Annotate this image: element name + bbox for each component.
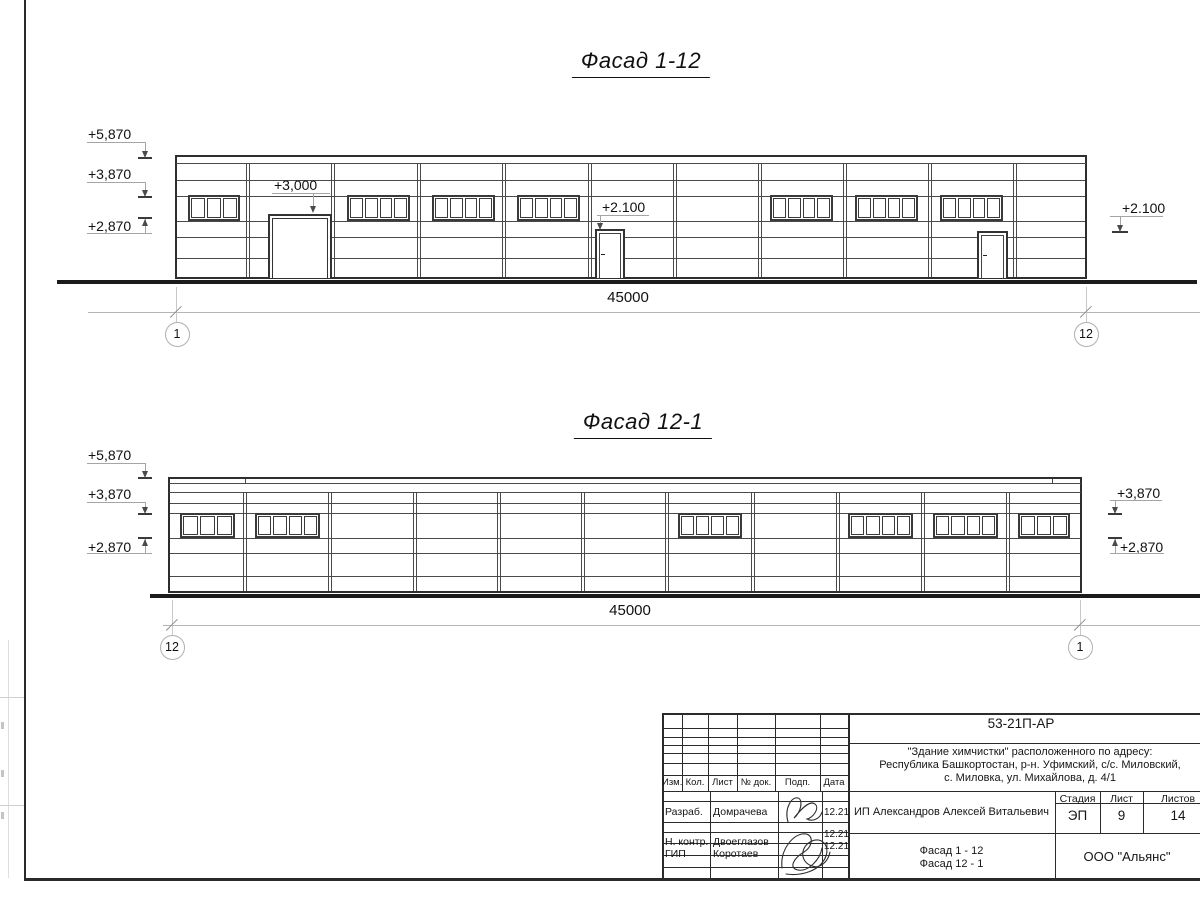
project-address-line: с. Миловка, ул. Михайлова, д. 4/1	[848, 772, 1200, 785]
sheet-label: Лист	[1100, 793, 1143, 805]
window-pane	[479, 198, 492, 218]
door-leaf	[599, 233, 621, 278]
column-line	[588, 163, 592, 277]
project-address-line: "Здание химчистки" расположенного по адр…	[848, 746, 1200, 759]
column-line	[581, 492, 585, 591]
elevation-level-tick	[138, 513, 152, 515]
sheets-total-label: Листов	[1143, 793, 1200, 805]
window-pane	[350, 198, 363, 218]
elevation-underline	[1110, 216, 1163, 217]
elevation-mark-text: +3,870	[1117, 485, 1160, 501]
role-razrab: Разраб.	[665, 806, 703, 818]
door-handle	[983, 255, 987, 257]
elevation-mark-text: +2,870	[88, 218, 131, 234]
dimension-value: 45000	[607, 289, 649, 306]
title-block-line	[662, 713, 1200, 715]
window-pane	[696, 516, 709, 535]
axis-circle: 1	[165, 322, 190, 347]
elevation-underline	[87, 553, 152, 554]
dimension-line	[88, 312, 1200, 313]
column-line	[497, 492, 501, 591]
stage-label: Стадия	[1055, 793, 1100, 805]
column-line	[246, 163, 250, 277]
name-nkontr: Двоеглазов	[713, 836, 769, 848]
project-address-line: Республика Башкортостан, р-н. Уфимский, …	[848, 759, 1200, 772]
margin-text-stub	[1, 722, 4, 729]
col-header-ndok: № док.	[737, 778, 775, 789]
window	[517, 195, 580, 221]
elevation-underline	[87, 233, 152, 234]
column-line	[665, 492, 669, 591]
sheet-margin-divider	[0, 805, 24, 806]
window-pane	[200, 516, 215, 535]
window-pane	[564, 198, 577, 218]
window-pane	[967, 516, 980, 535]
title-block-line	[848, 743, 1200, 744]
drawing-sheet: Фасад 1-12 Фасад 12-1 +5,870+3,870+2,870…	[0, 0, 1200, 900]
title-block-line	[662, 713, 664, 879]
role-gip: ГИП	[665, 848, 686, 860]
siding-line	[170, 576, 1080, 577]
elevation-shaft	[313, 193, 314, 207]
column-line	[328, 492, 332, 591]
window-pane	[951, 516, 964, 535]
elevation-level-tick	[1112, 231, 1128, 233]
col-header-izm: Изм.	[662, 778, 682, 789]
elevation-arrow-icon	[597, 223, 603, 230]
elevation-arrow-icon	[310, 206, 316, 213]
window-pane	[773, 198, 786, 218]
ground-line	[57, 280, 1197, 284]
window-pane	[1053, 516, 1067, 535]
elevation-mark-text: +5,870	[88, 126, 131, 142]
title-block-line	[662, 791, 1200, 792]
parapet-band-line	[176, 163, 1086, 164]
col-header-kol: Кол.	[682, 778, 708, 789]
window-pane	[273, 516, 286, 535]
window-pane	[289, 516, 302, 535]
window-pane	[520, 198, 533, 218]
company-name: ООО "Альянс"	[1057, 850, 1197, 865]
siding-line	[170, 538, 1080, 539]
window-pane	[1021, 516, 1035, 535]
dimension-value: 45000	[609, 602, 651, 619]
window-pane	[435, 198, 448, 218]
window-pane	[681, 516, 694, 535]
parapet-joint-line	[1052, 479, 1053, 483]
window-pane	[803, 198, 816, 218]
window	[855, 195, 918, 221]
column-line	[1013, 163, 1017, 277]
column-line	[1006, 492, 1010, 591]
parapet-band-line	[169, 492, 1081, 493]
window-pane	[394, 198, 407, 218]
window-pane	[304, 516, 317, 535]
elevation-underline	[597, 215, 649, 216]
parapet-joint-line	[245, 479, 246, 483]
window	[770, 195, 833, 221]
col-header-data: Дата	[820, 778, 848, 789]
window	[678, 513, 742, 538]
window	[432, 195, 495, 221]
margin-text-stub	[1, 812, 4, 819]
column-line	[417, 163, 421, 277]
client-name: ИП Александров Алексей Витальевич	[850, 806, 1053, 819]
door-handle	[601, 254, 605, 256]
window-pane	[973, 198, 986, 218]
elevation-underline	[1110, 500, 1162, 501]
window-pane	[217, 516, 232, 535]
sheet-frame-left	[24, 0, 26, 880]
window	[188, 195, 240, 221]
column-line	[843, 163, 847, 277]
name-razrab: Домрачева	[713, 806, 767, 818]
col-header-list: Лист	[708, 778, 737, 789]
document-number: 53-21П-АР	[848, 716, 1194, 732]
window	[940, 195, 1003, 221]
axis-circle: 12	[1074, 322, 1099, 347]
axis-circle: 12	[160, 635, 185, 660]
column-line	[751, 492, 755, 591]
door	[977, 231, 1008, 278]
elevation-underline	[272, 193, 330, 194]
extension-line	[176, 287, 177, 325]
column-line	[758, 163, 762, 277]
name-gip: Коротаев	[713, 848, 758, 860]
dimension-line	[163, 625, 1200, 626]
elevation-mark-text: +3,870	[88, 486, 131, 502]
window	[347, 195, 410, 221]
title-block-line	[710, 791, 711, 879]
window-pane	[191, 198, 205, 218]
window-pane	[450, 198, 463, 218]
col-header-podp: Подп.	[775, 778, 820, 789]
drawing-title-line: Фасад 1 - 12	[848, 845, 1055, 858]
siding-line	[170, 553, 1080, 554]
elevation-underline	[87, 182, 145, 183]
door	[595, 229, 625, 278]
column-line	[928, 163, 932, 277]
window	[848, 513, 913, 538]
window-pane	[982, 516, 995, 535]
window-pane	[183, 516, 198, 535]
sheets-total-value: 14	[1143, 808, 1200, 824]
window	[933, 513, 998, 538]
window-pane	[1037, 516, 1051, 535]
elevation-underline	[87, 142, 145, 143]
extension-line	[172, 600, 173, 637]
elevation-level-tick	[138, 537, 152, 539]
sheet-frame-bottom	[24, 878, 1200, 881]
window-pane	[888, 198, 901, 218]
ground-line	[150, 594, 1200, 598]
window-pane	[535, 198, 548, 218]
elevation-level-tick	[1108, 513, 1122, 515]
window-pane	[882, 516, 895, 535]
elevation-arrow-icon	[142, 539, 148, 546]
elevation-mark-text: +5,870	[88, 447, 131, 463]
window-pane	[726, 516, 739, 535]
column-line	[836, 492, 840, 591]
window-pane	[936, 516, 949, 535]
sheet-number: 9	[1100, 808, 1143, 824]
window-pane	[902, 198, 915, 218]
axis-circle: 1	[1068, 635, 1093, 660]
window-pane	[987, 198, 1000, 218]
elevation-mark-text: +2.100	[602, 199, 645, 215]
window-pane	[873, 198, 886, 218]
window-pane	[465, 198, 478, 218]
gate	[268, 214, 332, 278]
elevation-level-tick	[138, 477, 152, 479]
elevation-arrow-icon	[142, 219, 148, 226]
window	[255, 513, 320, 538]
elevation-level-tick	[138, 157, 152, 159]
sheet-margin-line	[8, 640, 9, 878]
elevation-underline	[87, 502, 145, 503]
window-pane	[711, 516, 724, 535]
role-nkontr: Н. контр.	[665, 836, 708, 848]
window-pane	[258, 516, 271, 535]
column-line	[502, 163, 506, 277]
elevation-mark-text: +3,870	[88, 166, 131, 182]
window-pane	[380, 198, 393, 218]
window-pane	[958, 198, 971, 218]
elevation-mark-text: +2.100	[1122, 200, 1165, 216]
window-pane	[550, 198, 563, 218]
elevation-underline	[1110, 553, 1164, 554]
window-pane	[897, 516, 910, 535]
window-pane	[866, 516, 879, 535]
elevation-level-tick	[138, 217, 152, 219]
elevation-mark-text: +3,000	[274, 177, 317, 193]
window-pane	[788, 198, 801, 218]
stage-value: ЭП	[1055, 808, 1100, 824]
window-pane	[943, 198, 956, 218]
drawing-title-line: Фасад 12 - 1	[848, 858, 1055, 871]
elevation-level-tick	[1108, 537, 1122, 539]
window	[180, 513, 235, 538]
door-leaf	[981, 235, 1004, 278]
parapet-band-line	[169, 483, 1081, 484]
column-line	[243, 492, 247, 591]
window-pane	[817, 198, 830, 218]
extension-line	[1080, 600, 1081, 637]
signatures	[776, 792, 836, 878]
elevation-underline	[87, 463, 145, 464]
window-pane	[207, 198, 221, 218]
window-pane	[858, 198, 871, 218]
window-pane	[223, 198, 237, 218]
gate-inner-frame	[272, 218, 328, 278]
column-line	[673, 163, 677, 277]
extension-line	[1086, 287, 1087, 325]
margin-text-stub	[1, 770, 4, 777]
sheet-margin-divider	[0, 697, 24, 698]
window-pane	[365, 198, 378, 218]
elevation-arrow-icon	[1112, 539, 1118, 546]
column-line	[921, 492, 925, 591]
window-pane	[851, 516, 864, 535]
column-line	[413, 492, 417, 591]
elevation-level-tick	[138, 196, 152, 198]
siding-line	[170, 503, 1080, 504]
title-block-line	[848, 833, 1200, 834]
window	[1018, 513, 1070, 538]
